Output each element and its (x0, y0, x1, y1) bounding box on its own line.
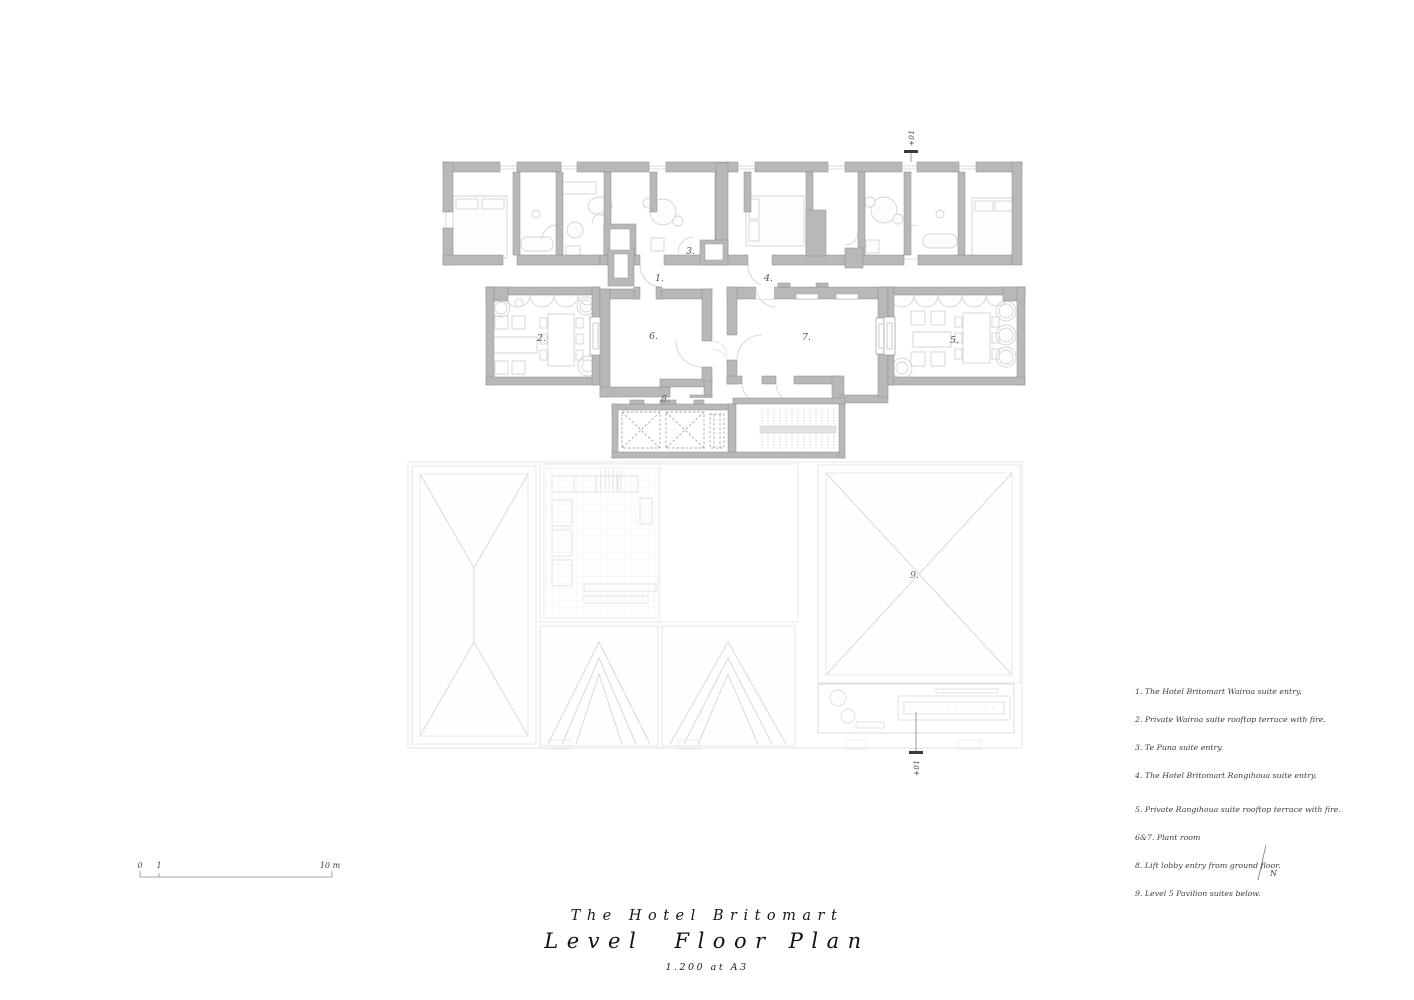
scale-bar-ten: 10 m (320, 861, 341, 870)
room-label-7: 7. (802, 332, 811, 343)
room-label-9: 9. (910, 570, 919, 581)
scale-bar-zero: 0 (137, 861, 142, 870)
section-marker-bottom-label: +01 (913, 760, 921, 776)
project-name: The Hotel Britomart (0, 908, 1414, 924)
lift-lobby (612, 398, 845, 458)
drawing-sheet: 9. +01 +01 (0, 0, 1414, 1000)
legend-line-2: 2. Private Wairoa suite rooftop terrace … (1135, 715, 1395, 724)
plant-room-7 (727, 283, 888, 404)
legend-line-8: 9. Level 5 Pavilion suites below. (1135, 889, 1395, 898)
legend-line-6: 6&7. Plant room (1135, 833, 1395, 842)
legend-line-1: 1. The Hotel Britomart Wairoa suite entr… (1135, 687, 1395, 696)
plant-room-6 (600, 287, 712, 405)
room-label-8: 8. (661, 394, 670, 405)
room-label-5: 5. (950, 335, 959, 346)
legend-line-3: 3. Te Puna suite entry. (1135, 743, 1395, 752)
room-label-3: 3. (686, 246, 695, 257)
legend-line-5: 5. Private Rangihoua suite rooftop terra… (1135, 805, 1395, 814)
room-label-4: 4. (763, 273, 773, 284)
legend-line-7: 8. Lift lobby entry from ground floor. (1135, 861, 1395, 870)
room-label-2: 2. (536, 333, 546, 344)
drawing-title: Level Floor Plan (0, 929, 1414, 953)
ghost-lower-level (408, 462, 1022, 749)
scale-bar-one: 1 (156, 861, 161, 870)
drawing-scale: 1.200 at A3 (0, 962, 1414, 973)
room-label-6: 6. (649, 331, 658, 342)
room-label-1: 1. (655, 273, 664, 284)
legend-line-4: 4. The Hotel Britomart Rangihoua suite e… (1135, 771, 1395, 780)
suites-band (443, 162, 1022, 287)
legend: 1. The Hotel Britomart Wairoa suite entr… (1135, 668, 1395, 908)
section-marker-top-label: +01 (908, 130, 916, 146)
title-block: The Hotel Britomart Level Floor Plan 1.2… (0, 908, 1414, 973)
corridor-6-7 (712, 341, 727, 364)
scale-bar (140, 871, 332, 877)
section-marker-bottom: +01 (909, 712, 923, 776)
